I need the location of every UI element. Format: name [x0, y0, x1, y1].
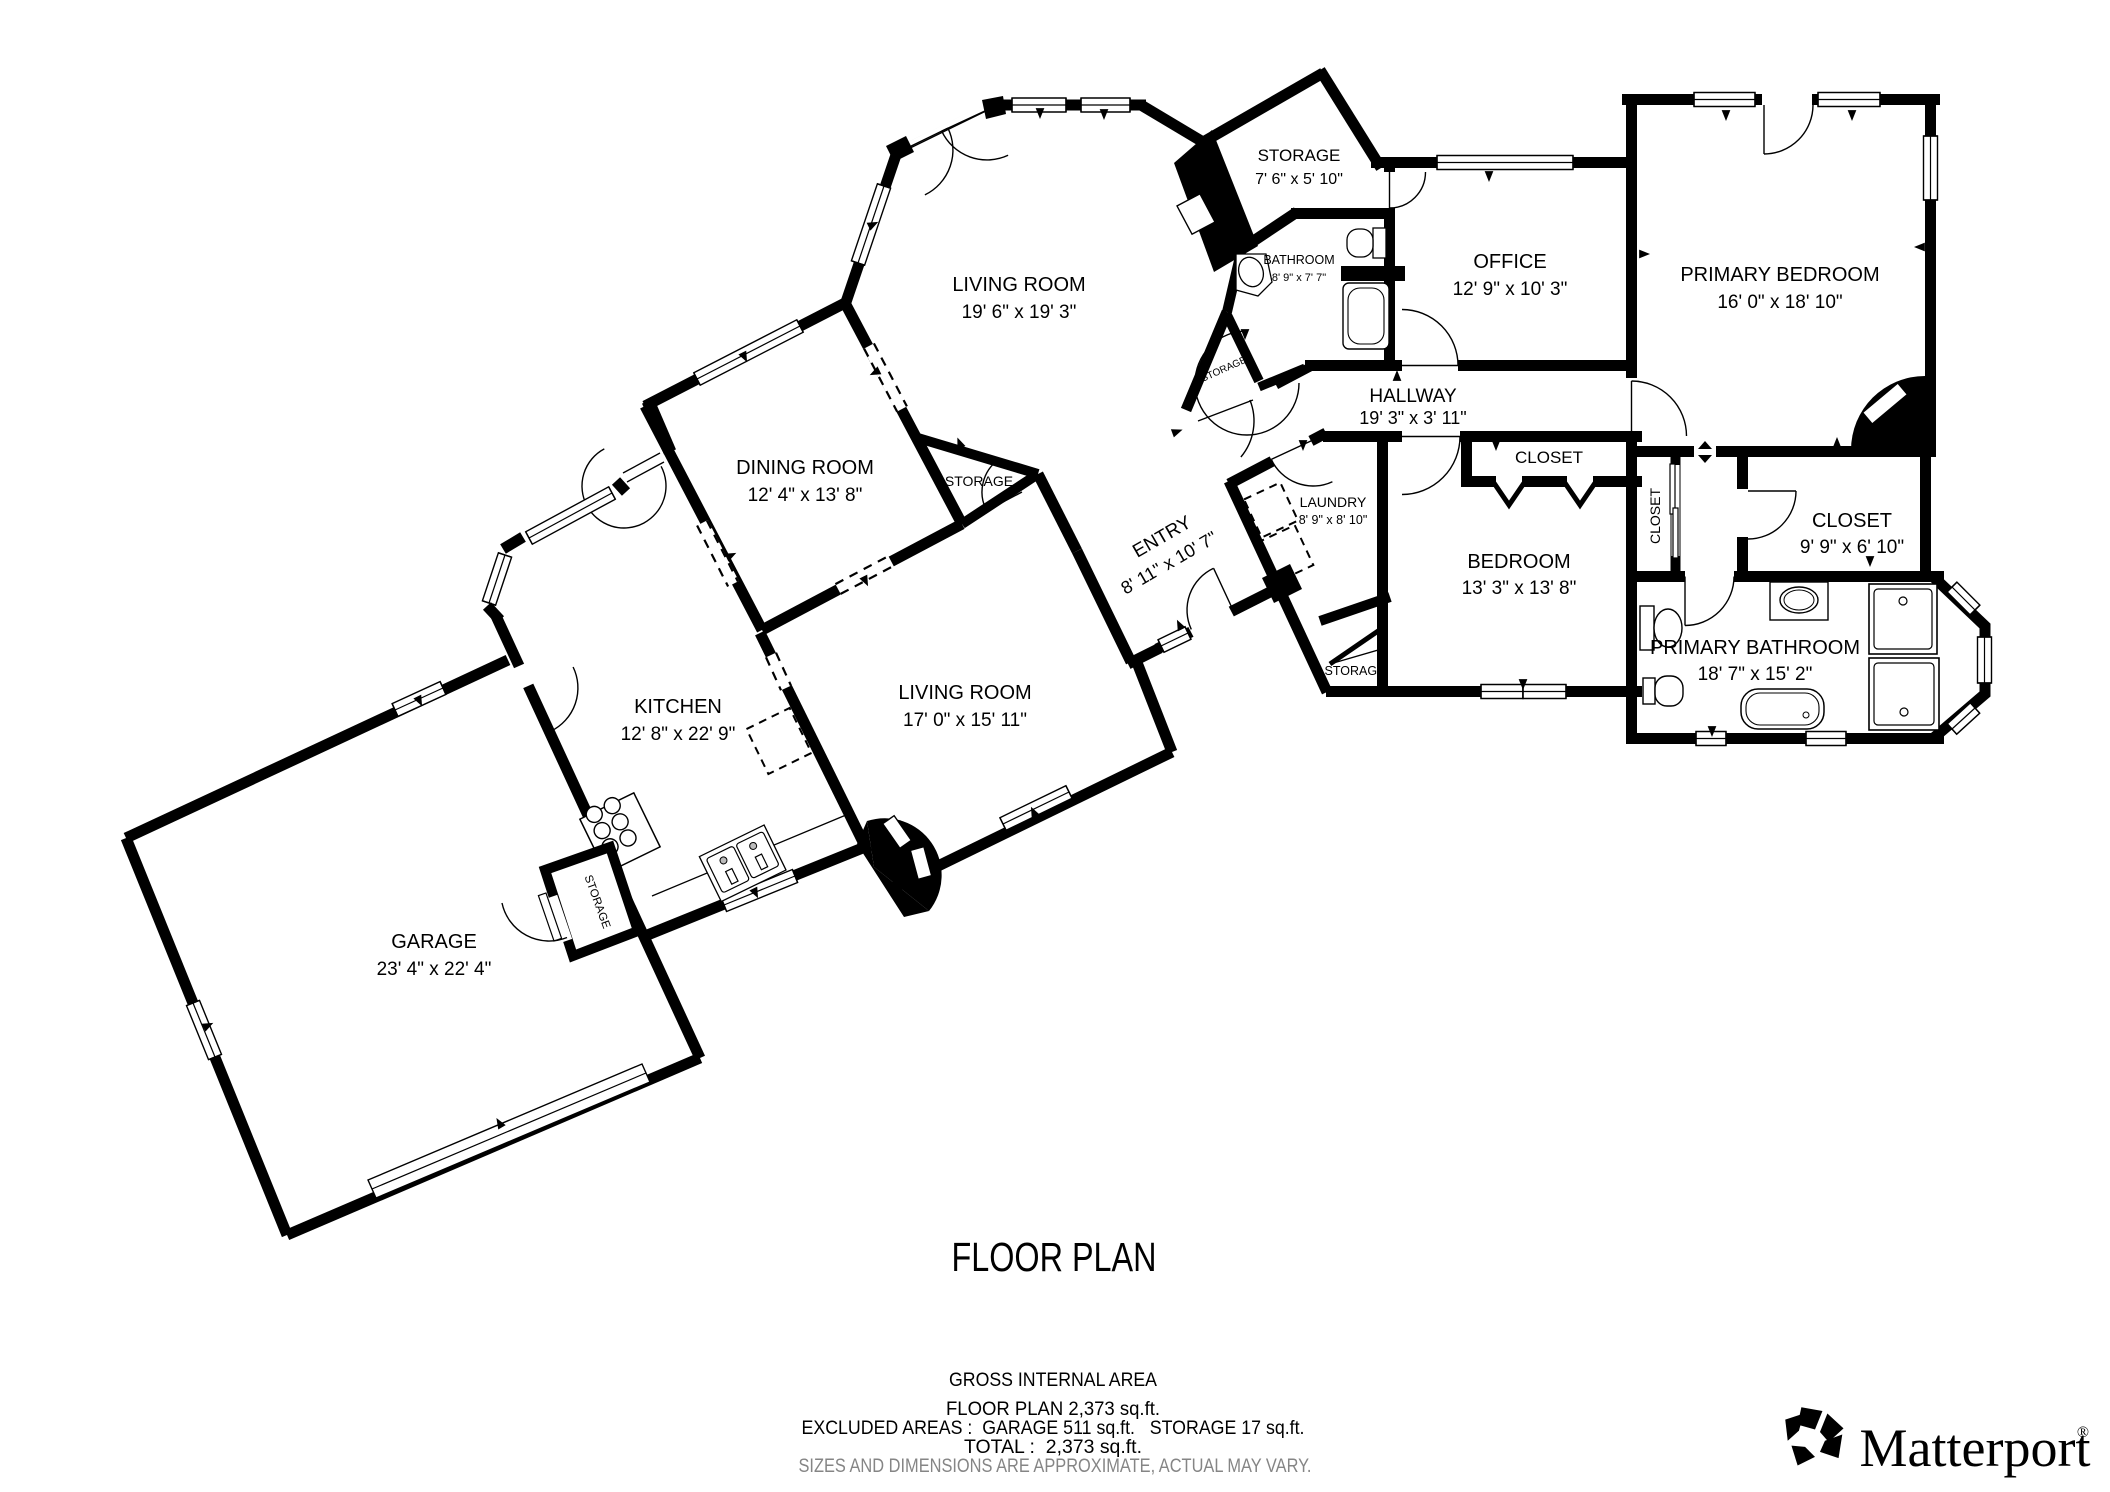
svg-text:Matterport: Matterport: [1860, 1418, 2091, 1478]
svg-text:EXCLUDED AREAS : GARAGE 511 s: EXCLUDED AREAS : GARAGE 511 sq.ft. STORA…: [802, 1418, 1305, 1439]
svg-text:TOTAL : 2,373 sq.ft.: TOTAL : 2,373 sq.ft.: [964, 1437, 1142, 1458]
svg-text:PRIMARY BATHROOM: PRIMARY BATHROOM: [1650, 637, 1860, 659]
svg-text:LIVING ROOM: LIVING ROOM: [898, 682, 1031, 704]
svg-text:GROSS INTERNAL AREA: GROSS INTERNAL AREA: [949, 1370, 1157, 1391]
svg-text:18' 7" x 15' 2": 18' 7" x 15' 2": [1698, 664, 1813, 685]
svg-text:GARAGE: GARAGE: [391, 931, 477, 953]
svg-text:12' 4" x 13' 8": 12' 4" x 13' 8": [748, 485, 863, 506]
svg-text:KITCHEN: KITCHEN: [634, 696, 722, 718]
svg-text:HALLWAY: HALLWAY: [1369, 386, 1457, 407]
svg-text:BATHROOM: BATHROOM: [1263, 253, 1334, 267]
svg-text:LAUNDRY: LAUNDRY: [1300, 494, 1367, 510]
svg-text:13' 3" x 13' 8": 13' 3" x 13' 8": [1462, 578, 1577, 599]
svg-text:STORAGE: STORAGE: [1258, 146, 1341, 165]
svg-text:8' 9" x 8' 10": 8' 9" x 8' 10": [1299, 513, 1368, 527]
svg-text:12' 9" x 10' 3": 12' 9" x 10' 3": [1453, 279, 1568, 300]
svg-text:19' 6" x 19' 3": 19' 6" x 19' 3": [962, 302, 1077, 323]
svg-text:CLOSET: CLOSET: [1647, 488, 1663, 544]
svg-text:7' 6" x 5' 10": 7' 6" x 5' 10": [1255, 171, 1343, 188]
svg-text:STORAGE: STORAGE: [945, 473, 1013, 489]
svg-text:PRIMARY BEDROOM: PRIMARY BEDROOM: [1680, 264, 1879, 286]
svg-text:DINING ROOM: DINING ROOM: [736, 457, 874, 479]
svg-text:19' 3" x 3' 11": 19' 3" x 3' 11": [1359, 408, 1466, 428]
svg-text:CLOSET: CLOSET: [1812, 510, 1892, 532]
svg-text:16' 0" x 18' 10": 16' 0" x 18' 10": [1717, 292, 1842, 313]
svg-text:23' 4" x 22' 4": 23' 4" x 22' 4": [377, 959, 492, 980]
svg-text:FLOOR PLAN 2,373 sq.ft.: FLOOR PLAN 2,373 sq.ft.: [946, 1399, 1160, 1420]
svg-text:CLOSET: CLOSET: [1515, 448, 1583, 467]
svg-text:LIVING ROOM: LIVING ROOM: [952, 274, 1085, 296]
svg-text:BEDROOM: BEDROOM: [1467, 551, 1570, 573]
svg-text:SIZES AND DIMENSIONS ARE APPRO: SIZES AND DIMENSIONS ARE APPROXIMATE, AC…: [799, 1456, 1312, 1477]
svg-text:STORAGE: STORAGE: [1325, 664, 1386, 678]
svg-text:8' 9" x 7' 7": 8' 9" x 7' 7": [1272, 272, 1326, 284]
svg-text:®: ®: [2077, 1424, 2089, 1441]
svg-text:17' 0" x 15' 11": 17' 0" x 15' 11": [903, 710, 1027, 731]
svg-text:FLOOR PLAN: FLOOR PLAN: [952, 1234, 1157, 1280]
svg-text:OFFICE: OFFICE: [1473, 251, 1546, 273]
svg-text:12' 8" x 22' 9": 12' 8" x 22' 9": [621, 724, 736, 745]
svg-text:9' 9" x 6' 10": 9' 9" x 6' 10": [1800, 537, 1904, 558]
